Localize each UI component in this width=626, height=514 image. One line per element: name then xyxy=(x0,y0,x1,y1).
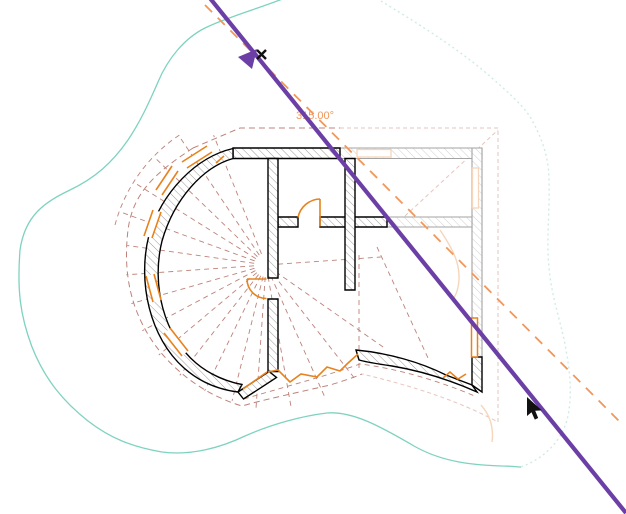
rotate-cursor-x-icon xyxy=(257,50,266,59)
ghost-rotation-ray xyxy=(405,130,498,216)
window-top-wall[interactable] xyxy=(357,150,391,158)
site-contour[interactable] xyxy=(19,0,570,467)
top-wall[interactable] xyxy=(233,148,340,159)
interior-wall-faded[interactable] xyxy=(387,217,472,227)
rotate-cursor-triangle-icon xyxy=(238,49,257,69)
vertical-wall-left-lower[interactable] xyxy=(268,299,278,372)
interior-wall-stub[interactable] xyxy=(278,217,298,227)
walls-faded[interactable] xyxy=(340,148,482,357)
ghost-wavy-wall-2 xyxy=(481,405,493,442)
roof-eave-inner[interactable] xyxy=(244,364,477,399)
floor-plan-view[interactable]: 315.00° xyxy=(0,0,626,514)
stair-cut-zigzag[interactable] xyxy=(268,354,358,382)
vertical-wall-left-upper[interactable] xyxy=(268,159,278,279)
cad-canvas[interactable]: 315.00° xyxy=(0,0,626,514)
window-right-wall-upper[interactable] xyxy=(473,168,479,208)
roof-outline-left[interactable] xyxy=(126,128,362,406)
door-1-swing[interactable] xyxy=(298,199,320,227)
right-wall-lower-black[interactable] xyxy=(472,357,482,392)
bottom-wavy-wall[interactable] xyxy=(356,350,477,392)
